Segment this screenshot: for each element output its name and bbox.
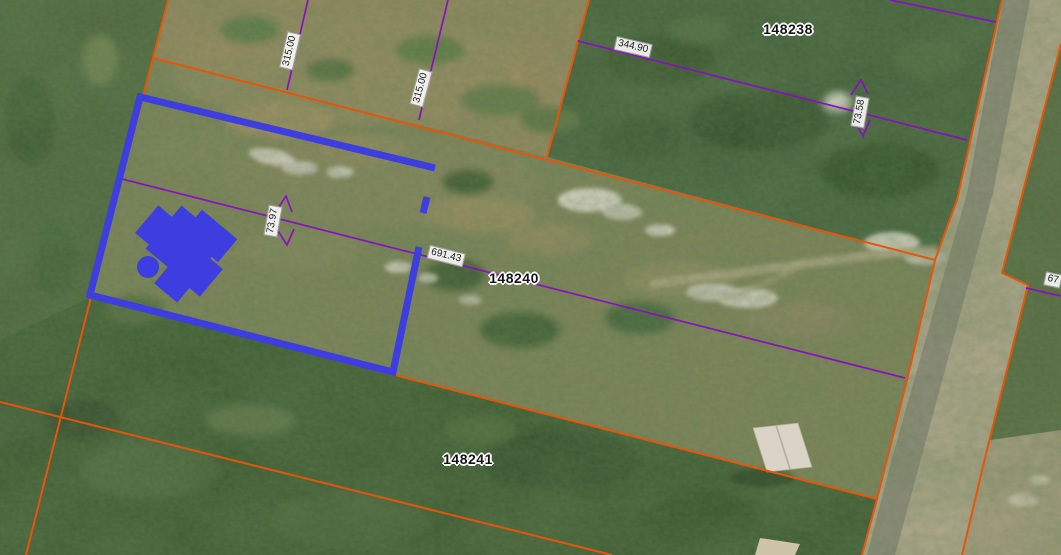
- parcel-label-148241: 148241: [443, 451, 493, 467]
- parcel-label-148240: 148240: [489, 270, 539, 286]
- parcel-label-148238: 148238: [763, 21, 813, 37]
- map-viewport[interactable]: 315.00 315.00 344.90 73.97 691.43 73.58 …: [0, 0, 1061, 555]
